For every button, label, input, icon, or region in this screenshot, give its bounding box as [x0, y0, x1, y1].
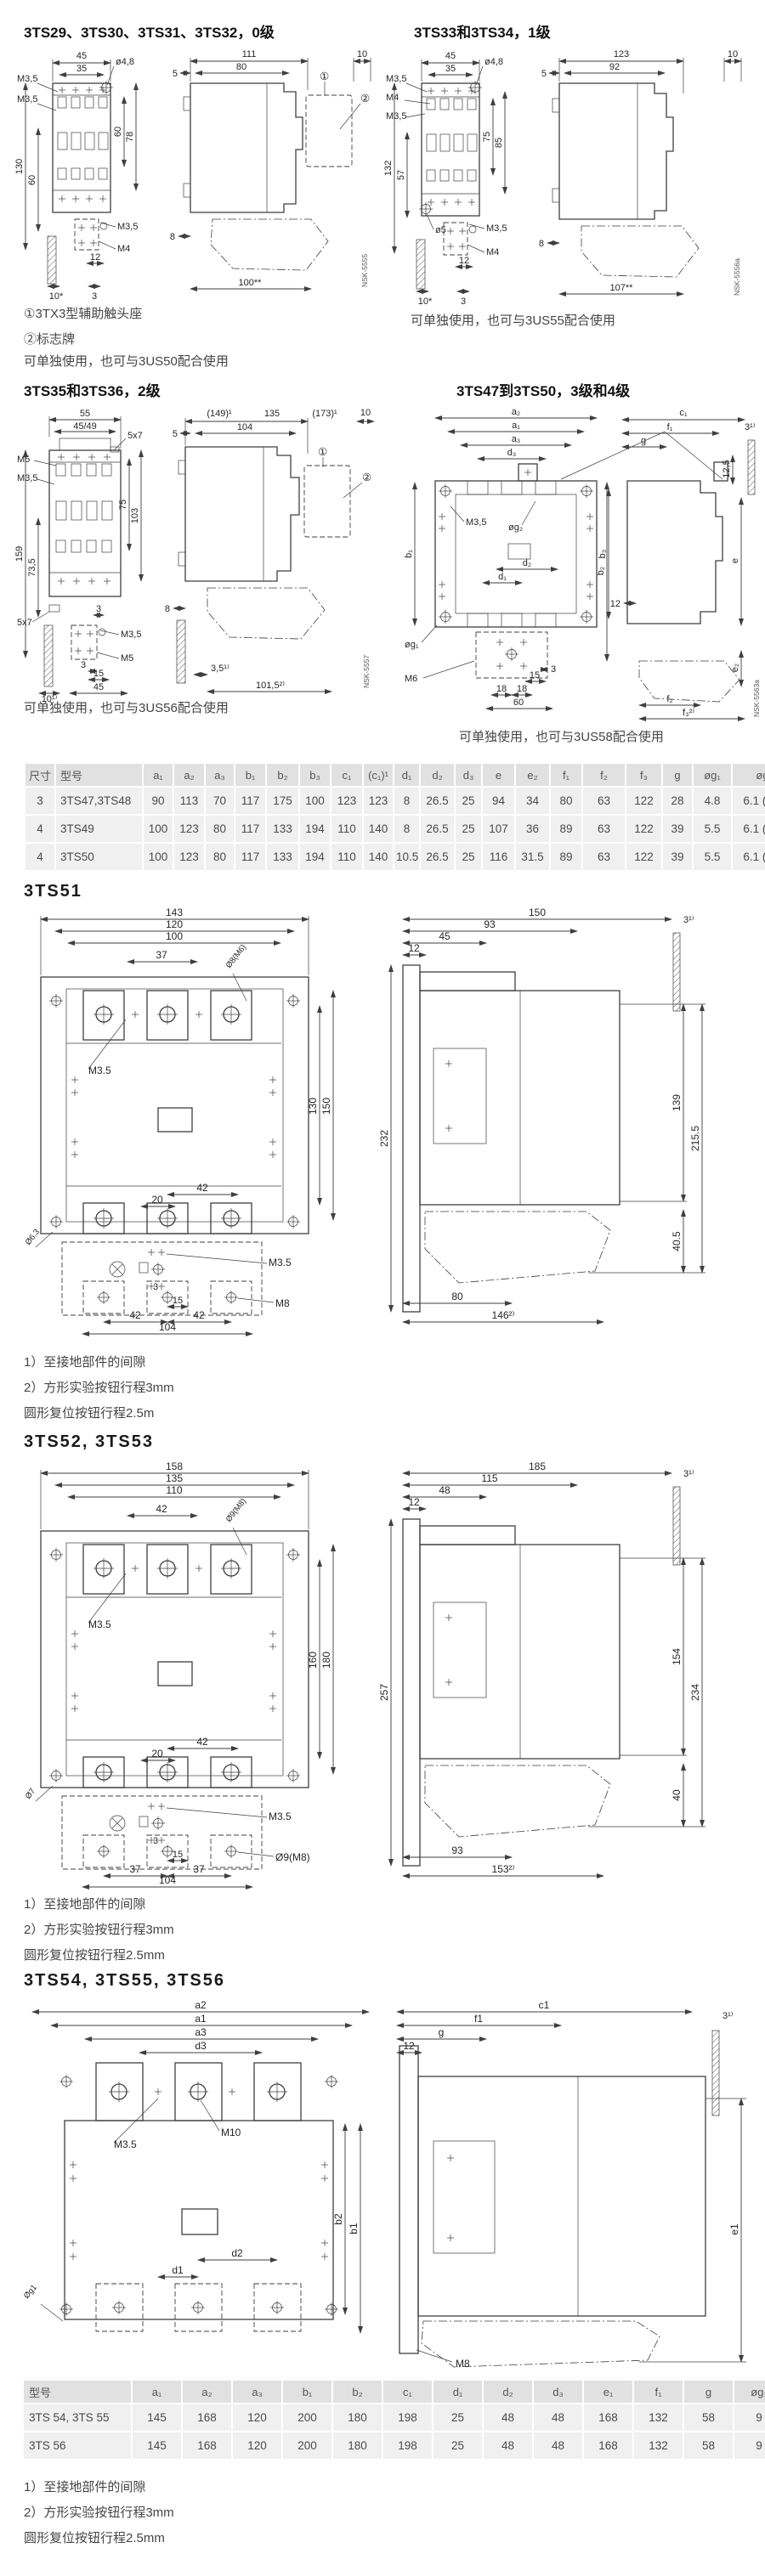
dim-label: 150 [320, 1098, 332, 1115]
table-cell: 133 [267, 844, 298, 870]
dim-label: b2 [332, 2213, 344, 2225]
footnote: 圆形复位按钮行程2.5mm [24, 2528, 165, 2546]
usage-note: 可单独使用，也可与3US56配合使用 [24, 698, 229, 716]
usage-note: 可单独使用，也可与3US58配合使用 [459, 727, 664, 745]
table-header-cell: g [663, 764, 692, 786]
dim-label: M4 [117, 244, 130, 254]
drawing-number: NSK-5556a [733, 258, 741, 296]
dim-label: a3 [195, 2026, 207, 2038]
dim-label: b₃ [598, 550, 608, 559]
dim-label: 35 [445, 64, 456, 74]
dim-label: 93 [451, 1844, 463, 1856]
dim-label: 3 [153, 1836, 158, 1846]
dim-label: 123 [614, 49, 629, 59]
drawing-geometry [36, 916, 333, 1334]
dim-label: 5 [173, 429, 178, 439]
dim-label: 3,5¹⁾ [211, 664, 229, 674]
dim-label: 42 [196, 1736, 208, 1748]
table-cell: 89 [551, 816, 581, 842]
dim-label: 3 [153, 1282, 158, 1292]
dim-label: 45 [76, 51, 87, 61]
dim-label: 135 [264, 409, 280, 419]
dim-label: M3.5 [114, 2138, 137, 2150]
table-header-cell: d₂ [484, 2381, 532, 2403]
dim-label: 15 [530, 670, 540, 681]
dim-label: 45 [93, 682, 104, 692]
dim-label: M8 [275, 1297, 290, 1309]
section-title-3ts51: 3TS51 [24, 882, 82, 901]
dim-label: Ø9(M8) [224, 1497, 248, 1524]
footnote: 1）至接地部件的间隙 [24, 2477, 145, 2495]
table-cell: 123 [331, 788, 362, 814]
table-cell: 63 [583, 816, 625, 842]
table-cell: 94 [483, 788, 514, 814]
table-header-cell: a₂ [183, 2381, 231, 2403]
drawing-geometry [415, 418, 755, 719]
dim-label: 18 [496, 684, 507, 694]
table-cell: 122 [626, 788, 661, 814]
dim-label: 100 [166, 930, 183, 942]
dim-label: 42 [193, 1309, 205, 1321]
table-header-cell: a₁ [144, 764, 173, 786]
table-header-cell: øg₁ [694, 764, 731, 786]
dim-label: (173)¹ [312, 409, 337, 419]
dim-label: 57 [396, 170, 406, 180]
dim-label: 159 [14, 546, 25, 562]
dim-label: 10* [49, 291, 64, 302]
dim-label: f₁ [667, 422, 673, 432]
dim-label: 115 [481, 1472, 497, 1484]
table-cell: 3TS 54, 3TS 55 [24, 2404, 131, 2431]
table-header-cell: øg₂ [733, 764, 765, 786]
table-cell: 132 [634, 2404, 683, 2431]
callout-1: ① [320, 71, 329, 82]
table-cell: 8 [394, 816, 419, 842]
table-cell: 25 [456, 816, 481, 842]
dim-label: 12,5 [722, 460, 732, 477]
table-cell: 4 [25, 844, 54, 870]
footnote: 1）至接地部件的间隙 [24, 1353, 145, 1370]
table-cell: 80 [551, 788, 581, 814]
table-cell: 70 [206, 788, 234, 814]
dim-label: 73,5 [27, 558, 37, 576]
table-cell: 48 [534, 2432, 582, 2459]
dim-label: g [439, 2026, 445, 2038]
dim-label: 3 [96, 604, 101, 614]
table-cell: 145 [133, 2404, 181, 2431]
dim-label: 3 [81, 660, 86, 670]
dim-label: g [641, 436, 646, 446]
dim-label: 60 [113, 127, 123, 137]
table-cell: 39 [663, 816, 692, 842]
table-cell: 123 [174, 816, 204, 842]
dim-label: M10 [221, 2127, 241, 2138]
dim-label: 75 [482, 132, 492, 142]
table-cell: 89 [551, 844, 581, 870]
table-header-cell: d₁ [433, 2381, 482, 2403]
table-cell: 194 [300, 844, 330, 870]
table-cell: 180 [333, 2404, 382, 2431]
footnote: ①3TX3型辅助触头座 [24, 304, 142, 322]
table-cell: 80 [206, 816, 234, 842]
table-header-cell: f₁ [551, 764, 581, 786]
dim-label: d₃ [507, 448, 517, 458]
table-cell: 3TS47,3TS48 [56, 788, 142, 814]
dim-label: 130 [14, 159, 25, 174]
table-row: 43TS501001238011713319411014010.526.5251… [25, 844, 765, 870]
section-title-3ts29: 3TS29、3TS30、3TS31、3TS32，0级 [24, 20, 275, 42]
table-cell: 10.5 [394, 844, 419, 870]
table-cell: 180 [333, 2432, 382, 2459]
dim-label: 80 [236, 62, 246, 72]
drawing-3ts47-dimensions: a₂ a₁ a₃ d₃ M3,5 øg₂ b₁ b₃ d₂ d₁ øg₁ M6 … [384, 406, 762, 722]
table-cell: 168 [183, 2432, 231, 2459]
dim-label: 3¹⁾ [683, 1469, 694, 1479]
dim-label: ø5 [435, 225, 446, 235]
table-cell: 117 [235, 788, 265, 814]
table-cell: 6.1 (M6) [733, 788, 765, 814]
dim-label: M3,5 [486, 223, 507, 234]
dim-label: M3,5 [386, 74, 406, 84]
dim-label: 111 [242, 49, 257, 59]
table-header-cell: 型号 [56, 764, 142, 786]
table-cell: 175 [267, 788, 298, 814]
dim-label: Øg1 [22, 2283, 39, 2301]
dim-label: 93 [484, 918, 496, 930]
table-cell: 200 [283, 2404, 331, 2431]
table-cell: 198 [383, 2404, 432, 2431]
table-cell: 28 [663, 788, 692, 814]
table-header-cell: d₂ [421, 764, 454, 786]
dim-label: 103 [130, 508, 140, 523]
dim-label: 15 [173, 1296, 183, 1306]
dim-label: 215.5 [689, 1126, 701, 1151]
dim-label: 40 [671, 1789, 683, 1801]
table-cell: 6.1 (M6) [733, 844, 765, 870]
table-header-cell: f₁ [634, 2381, 683, 2403]
dim-label: 12 [408, 1496, 420, 1508]
table-header-cell: b₁ [235, 764, 265, 786]
table-header-cell: g [684, 2381, 733, 2403]
drawing-3ts54-side: c1 f1 g 12 3¹⁾ e1 M8 [384, 1998, 762, 2372]
dim-label: 12 [90, 252, 100, 263]
dim-label: 80 [451, 1291, 463, 1302]
table-cell: 122 [626, 844, 661, 870]
dim-label: 48 [439, 1484, 450, 1496]
table-cell: 168 [183, 2404, 231, 2431]
dim-label: 10 [357, 49, 367, 59]
usage-note: 可单独使用，也可与3US55配合使用 [411, 311, 615, 329]
table-header-cell: a₃ [233, 2381, 281, 2403]
drawing-3ts54-front: a2 a1 a3 d3 M3.5 M10 b2 b1 d2 d1 Øg1 [15, 1998, 381, 2372]
table-cell: 110 [331, 816, 362, 842]
dim-label: M3,5 [17, 94, 37, 105]
table-cell: 100 [300, 788, 330, 814]
table-header-cell: (c₁)¹ [364, 764, 393, 786]
dim-label: a2 [195, 1999, 207, 2011]
table-cell: 168 [584, 2404, 632, 2431]
table-cell: 48 [484, 2432, 532, 2459]
table-cell: 31.5 [516, 844, 549, 870]
dimensions-table-3ts54-3ts56: 型号a₁a₂a₃b₁b₂c₁d₁d₂d₃e₁f₁gøg₁3TS 54, 3TS … [22, 2379, 765, 2460]
dim-label: e1 [728, 2223, 740, 2235]
dim-label: 37 [193, 1863, 205, 1875]
table-header-cell: 型号 [24, 2381, 131, 2403]
table-cell: 3TS49 [56, 816, 142, 842]
dim-label: d2 [231, 2247, 243, 2259]
table-cell: 48 [484, 2404, 532, 2431]
table-cell: 120 [233, 2404, 281, 2431]
dim-label: M3.5 [269, 1257, 292, 1268]
drawing-3ts51-front: 143 120 100 37 Ø8(M6) M3.5 130 150 42 20… [15, 906, 372, 1337]
dim-label: 15 [173, 1850, 183, 1860]
dim-label: 12 [408, 942, 420, 954]
dim-label: 232 [378, 1130, 390, 1147]
dim-label: 92 [609, 62, 620, 72]
table-cell: 26.5 [421, 788, 454, 814]
dim-label: a₂ [512, 407, 520, 417]
table-cell: 140 [364, 816, 393, 842]
dim-label: 180 [320, 1652, 332, 1669]
drawing-3ts51-side: 150 93 45 12 3¹⁾ 232 139 215.5 40.5 80 1… [384, 906, 762, 1337]
dim-label: 40.5 [671, 1231, 683, 1251]
dim-label: 101,5²⁾ [256, 681, 285, 691]
dim-label: e [730, 558, 740, 563]
dimensions-table-3ts47-3ts50: 尺寸型号a₁a₂a₃b₁b₂b₃c₁(c₁)¹d₁d₂d₃ee₂f₁f₂f₃gø… [24, 762, 765, 872]
dim-label: 104 [159, 1321, 176, 1333]
table-cell: 117 [235, 844, 265, 870]
table-header-cell: 尺寸 [25, 764, 54, 786]
dim-label: 139 [671, 1094, 683, 1111]
drawing-geometry [391, 919, 705, 1322]
table-header-cell: c₁ [331, 764, 362, 786]
footnote: 2）方形实验按钮行程3mm [24, 1378, 174, 1396]
dim-label: 85 [494, 138, 504, 148]
table-cell: 117 [235, 816, 265, 842]
dim-label: ø4,8 [484, 57, 503, 67]
dim-label: f₃²⁾ [683, 708, 694, 718]
table-cell: 58 [684, 2432, 733, 2459]
table-header-cell: b₃ [300, 764, 330, 786]
table-cell: 100 [144, 816, 173, 842]
dim-label: 234 [689, 1684, 701, 1701]
dim-label: 12 [459, 256, 469, 266]
table-cell: 48 [534, 2404, 582, 2431]
dim-label: c₁ [679, 408, 688, 418]
dim-label: 42 [196, 1182, 208, 1194]
drawing-3ts29-dimensions: 45 ø4,8 35 M3,5 M3,5 60 78 130 60 M3,5 M… [15, 48, 381, 302]
dim-label: d₂ [523, 558, 531, 568]
dim-label: 110 [166, 1484, 182, 1496]
dim-label: 257 [378, 1684, 390, 1701]
dim-label: M3.5 [88, 1618, 111, 1630]
dim-label: b1 [348, 2223, 360, 2234]
dim-label: 185 [529, 1460, 546, 1472]
table-cell: 8 [394, 788, 419, 814]
dim-label: M3,5 [386, 111, 406, 121]
footnote: 1）至接地部件的间隙 [24, 1895, 145, 1912]
table-header-cell: e [483, 764, 514, 786]
table-cell: 5.5 [694, 816, 731, 842]
table-row: 3TS 56145168120200180198254848168132589 [24, 2432, 765, 2459]
table-header-cell: a₁ [133, 2381, 181, 2403]
dim-label: Ø8(M6) [224, 943, 248, 970]
table-cell: 3 [25, 788, 54, 814]
dim-label: M5 [17, 455, 30, 465]
dim-label: 75 [118, 500, 128, 510]
table-header-cell: d₃ [534, 2381, 582, 2403]
dim-label: 100** [239, 278, 263, 288]
table-header-cell: f₃ [626, 764, 661, 786]
table-cell: 100 [144, 844, 173, 870]
callout-2: ② [360, 93, 370, 105]
dim-label: 3¹⁾ [683, 915, 694, 925]
dim-label: 3¹⁾ [722, 2011, 734, 2021]
table-cell: 26.5 [421, 844, 454, 870]
drawing-geometry [391, 1473, 705, 1876]
callout-1: ① [318, 446, 327, 458]
table-cell: 39 [663, 844, 692, 870]
dim-label: 45/49 [73, 421, 97, 432]
dim-label: 8 [170, 232, 175, 242]
table-cell: 3TS 56 [24, 2432, 131, 2459]
table-cell: 133 [267, 816, 298, 842]
table-cell: 26.5 [421, 816, 454, 842]
drawing-number: NSK-5557 [362, 655, 371, 688]
dim-label: c1 [539, 1999, 550, 2011]
dim-label: M6 [405, 674, 417, 684]
table-header-cell: øg₁ [734, 2381, 765, 2403]
dim-label: 60 [27, 175, 37, 185]
dim-label: f1 [474, 2013, 483, 2025]
table-cell: 3TS50 [56, 844, 142, 870]
dim-label: 12 [610, 599, 620, 609]
dim-label: 3 [461, 297, 466, 307]
table-cell: 107 [483, 816, 514, 842]
drawing-geometry [394, 58, 741, 294]
dim-label: 5 [541, 69, 547, 79]
table-cell: 63 [583, 788, 625, 814]
dim-label: 5x7 [127, 431, 143, 441]
dim-label: M8 [456, 2358, 470, 2370]
table-header-cell: f₂ [583, 764, 625, 786]
dim-label: M5 [121, 653, 133, 664]
dim-label: f₂ [666, 694, 672, 704]
dim-label: ø4,8 [116, 57, 134, 67]
dim-label: 143 [166, 907, 183, 918]
dim-label: e₂ [730, 664, 740, 672]
table-cell: 110 [331, 844, 362, 870]
table-header-cell: a₂ [174, 764, 204, 786]
callout-2: ② [362, 472, 371, 483]
table-cell: 6.1 (M6) [733, 816, 765, 842]
dim-label: (149)¹ [207, 409, 232, 419]
dim-label: 18 [517, 684, 527, 694]
dim-label: M3,5 [466, 517, 486, 528]
dim-label: 8 [539, 239, 544, 249]
dim-label: M3,5 [121, 630, 141, 640]
dim-label: d₁ [498, 572, 507, 582]
dim-label: a₃ [512, 434, 521, 444]
catalog-page: { "colors":{"line":"#3f3f3f","table_head… [0, 0, 765, 2576]
table-cell: 9 [734, 2404, 765, 2431]
table-header-cell: b₁ [283, 2381, 331, 2403]
dim-label: 8 [165, 604, 170, 614]
dim-label: d3 [195, 2040, 207, 2052]
dim-label: 42 [156, 1503, 167, 1515]
table-cell: 145 [133, 2432, 181, 2459]
table-cell: 5.5 [694, 844, 731, 870]
dim-label: 45 [439, 930, 450, 942]
table-cell: 25 [433, 2432, 482, 2459]
table-cell: 63 [583, 844, 625, 870]
dim-label: 146²⁾ [492, 1309, 515, 1321]
dim-label: 3 [551, 664, 556, 675]
table-cell: 4.8 [694, 788, 731, 814]
table-cell: 36 [516, 816, 549, 842]
table-cell: 200 [283, 2432, 331, 2459]
dim-label: 107** [610, 283, 634, 293]
usage-note: 可单独使用，也可与3US50配合使用 [24, 352, 229, 370]
dim-label: øg₁ [405, 640, 419, 650]
drawing-3ts33-dimensions: 45 ø4,8 35 M3,5 M4 M3,5 75 85 132 57 ø5 … [384, 48, 762, 311]
dim-label: 5x7 [17, 618, 32, 628]
table-header-cell: e₁ [584, 2381, 632, 2403]
dim-label: b₁ [404, 550, 414, 558]
table-cell: 123 [174, 844, 204, 870]
table-cell: 168 [584, 2432, 632, 2459]
table-cell: 9 [734, 2432, 765, 2459]
table-header-cell: e₂ [516, 764, 549, 786]
dim-label: 10 [360, 408, 371, 418]
drawing-number: NSK-5563a [752, 680, 761, 717]
table-cell: 90 [144, 788, 173, 814]
table-header-cell: b₂ [333, 2381, 382, 2403]
dim-label: M3.5 [88, 1065, 111, 1076]
table-cell: 113 [174, 788, 204, 814]
dim-label: 3 [92, 291, 97, 302]
table-cell: 194 [300, 816, 330, 842]
drawing-number: NSK-5555 [360, 254, 369, 287]
table-header-cell: c₁ [383, 2381, 432, 2403]
table-cell: 140 [364, 844, 393, 870]
dim-label: 104 [237, 422, 252, 432]
dim-label: 5 [173, 69, 178, 79]
table-cell: 120 [233, 2432, 281, 2459]
dim-label: 130 [307, 1098, 319, 1115]
dim-label: 37 [129, 1863, 141, 1875]
dim-label: 55 [80, 409, 90, 419]
drawing-geometry [32, 2012, 369, 2333]
dim-label: 135 [166, 1472, 183, 1484]
dim-label: 35 [76, 64, 87, 74]
table-cell: 198 [383, 2432, 432, 2459]
table-header-cell: d₁ [394, 764, 419, 786]
dim-label: 10 [728, 49, 738, 59]
table-cell: 116 [483, 844, 514, 870]
table-cell: 4 [25, 816, 54, 842]
dim-label: d1 [172, 2264, 184, 2276]
footnote: 圆形复位按钮行程2.5mm [24, 1946, 165, 1963]
dim-label: 150 [529, 907, 546, 918]
dim-label: M3,5 [17, 473, 37, 483]
table-cell: 58 [684, 2404, 733, 2431]
table-row: 3TS 54, 3TS 5514516812020018019825484816… [24, 2404, 765, 2431]
section-title-3ts35: 3TS35和3TS36，2级 [24, 379, 161, 400]
footnote: 2）方形实验按钮行程3mm [24, 1920, 174, 1938]
dim-label: M3,5 [117, 222, 138, 232]
dim-label: M3.5 [269, 1811, 292, 1822]
